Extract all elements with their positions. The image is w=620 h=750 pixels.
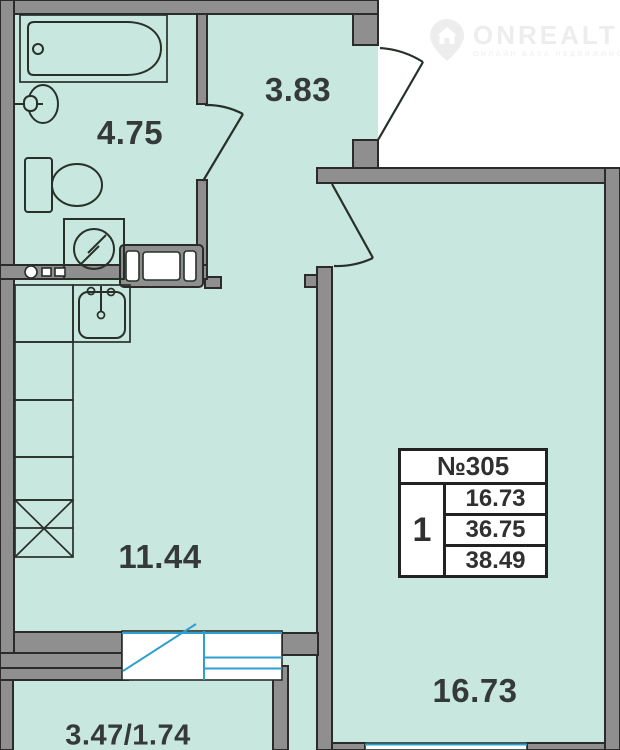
room-label-balcony: 3.47/1.74	[65, 720, 190, 750]
wardrobe-icon	[15, 500, 73, 557]
floor-plan-drawing	[0, 0, 620, 750]
wall-bathroom-divider-upper	[197, 14, 207, 104]
bathtub-body	[28, 22, 161, 75]
wall-right	[605, 168, 620, 750]
kitchen-counter-icon	[15, 285, 130, 500]
counter-cabinet	[15, 400, 73, 457]
vent-slot	[126, 251, 139, 281]
room-count: 1	[401, 485, 446, 575]
wall-room-left-stub	[305, 275, 317, 287]
room-door-leaf	[332, 184, 373, 258]
wall-room-bottom-right	[527, 743, 605, 750]
logo-tagline: ОНЛАЙН БАЗА НЕДВИЖИМОСТИ	[473, 51, 620, 58]
total-area-value: 38.49	[446, 547, 545, 575]
apartment-number: №305	[401, 451, 545, 485]
balcony-door-window-icon	[122, 624, 282, 680]
wardrobe-cross	[15, 500, 73, 557]
toilet-tank	[25, 158, 52, 212]
wall-window-right-block	[282, 633, 318, 655]
toilet-icon	[25, 158, 102, 212]
washing-machine-drum	[74, 229, 114, 269]
vent-slot	[143, 252, 180, 280]
living-area-value: 16.73	[446, 485, 545, 516]
wall-room-bottom-left	[332, 743, 365, 750]
apartment-info-table: №305 1 16.73 36.75 38.49	[398, 448, 548, 578]
entrance-door-icon	[378, 48, 423, 140]
pipe-box	[55, 268, 65, 276]
location-pin-house-icon	[428, 18, 466, 62]
entrance-door-arc	[380, 48, 423, 62]
room-label-bathroom: 4.75	[97, 114, 163, 152]
vent-slot	[184, 251, 196, 281]
wall-entry-stub-top	[353, 14, 378, 45]
room-label-living-room: 16.73	[432, 672, 517, 710]
onrealt-logo: ONREALT ОНЛАЙН БАЗА НЕДВИЖИМОСТИ	[428, 18, 620, 62]
wall-balcony-parapet-1	[0, 653, 122, 668]
kitchen-sink-icon	[79, 286, 125, 338]
washing-machine-mark	[81, 235, 106, 264]
walls	[0, 0, 620, 750]
floor-plan-canvas: 4.75 3.83 11.44 16.73 3.47/1.74 №305 1 1…	[0, 0, 620, 750]
area-value: 36.75	[446, 516, 545, 547]
counter-cabinet	[15, 285, 73, 342]
wall-balcony-parapet-2	[0, 668, 128, 680]
bathroom-door-icon	[203, 105, 243, 181]
room-label-kitchen: 11.44	[118, 538, 201, 576]
room-door-arc	[334, 258, 373, 266]
wall-kitchen-bottom	[14, 632, 122, 653]
wall-room-top	[317, 168, 620, 183]
sink-faucet-head	[98, 312, 105, 319]
vent-shaft-icon	[120, 245, 203, 287]
room-window-icon	[365, 743, 527, 750]
room-door-icon	[332, 184, 373, 266]
bathtub-icon	[20, 15, 167, 82]
wall-left	[0, 0, 14, 653]
wall-room-left	[317, 267, 332, 750]
pipe-box	[42, 268, 51, 276]
bathroom-door-leaf	[203, 114, 243, 181]
room-label-hallway: 3.83	[265, 71, 331, 109]
pipe-chase-icon	[25, 266, 65, 278]
counter-cabinet	[15, 342, 73, 400]
bathroom-door-arc	[205, 105, 243, 114]
pipe-circle	[25, 266, 37, 278]
wall-entry-stub-bottom	[353, 140, 378, 168]
wash-basin-icon	[14, 85, 58, 123]
wall-top	[0, 0, 378, 14]
entrance-door-leaf	[378, 62, 423, 140]
counter-cabinet	[15, 457, 73, 500]
toilet-bowl	[52, 164, 102, 206]
wall-balcony-left	[0, 680, 13, 750]
basin-faucet	[24, 96, 37, 111]
logo-text: ONREALT ОНЛАЙН БАЗА НЕДВИЖИМОСТИ	[473, 22, 620, 58]
bathtub-drain	[33, 44, 43, 54]
logo-brand: ONREALT	[473, 22, 620, 48]
